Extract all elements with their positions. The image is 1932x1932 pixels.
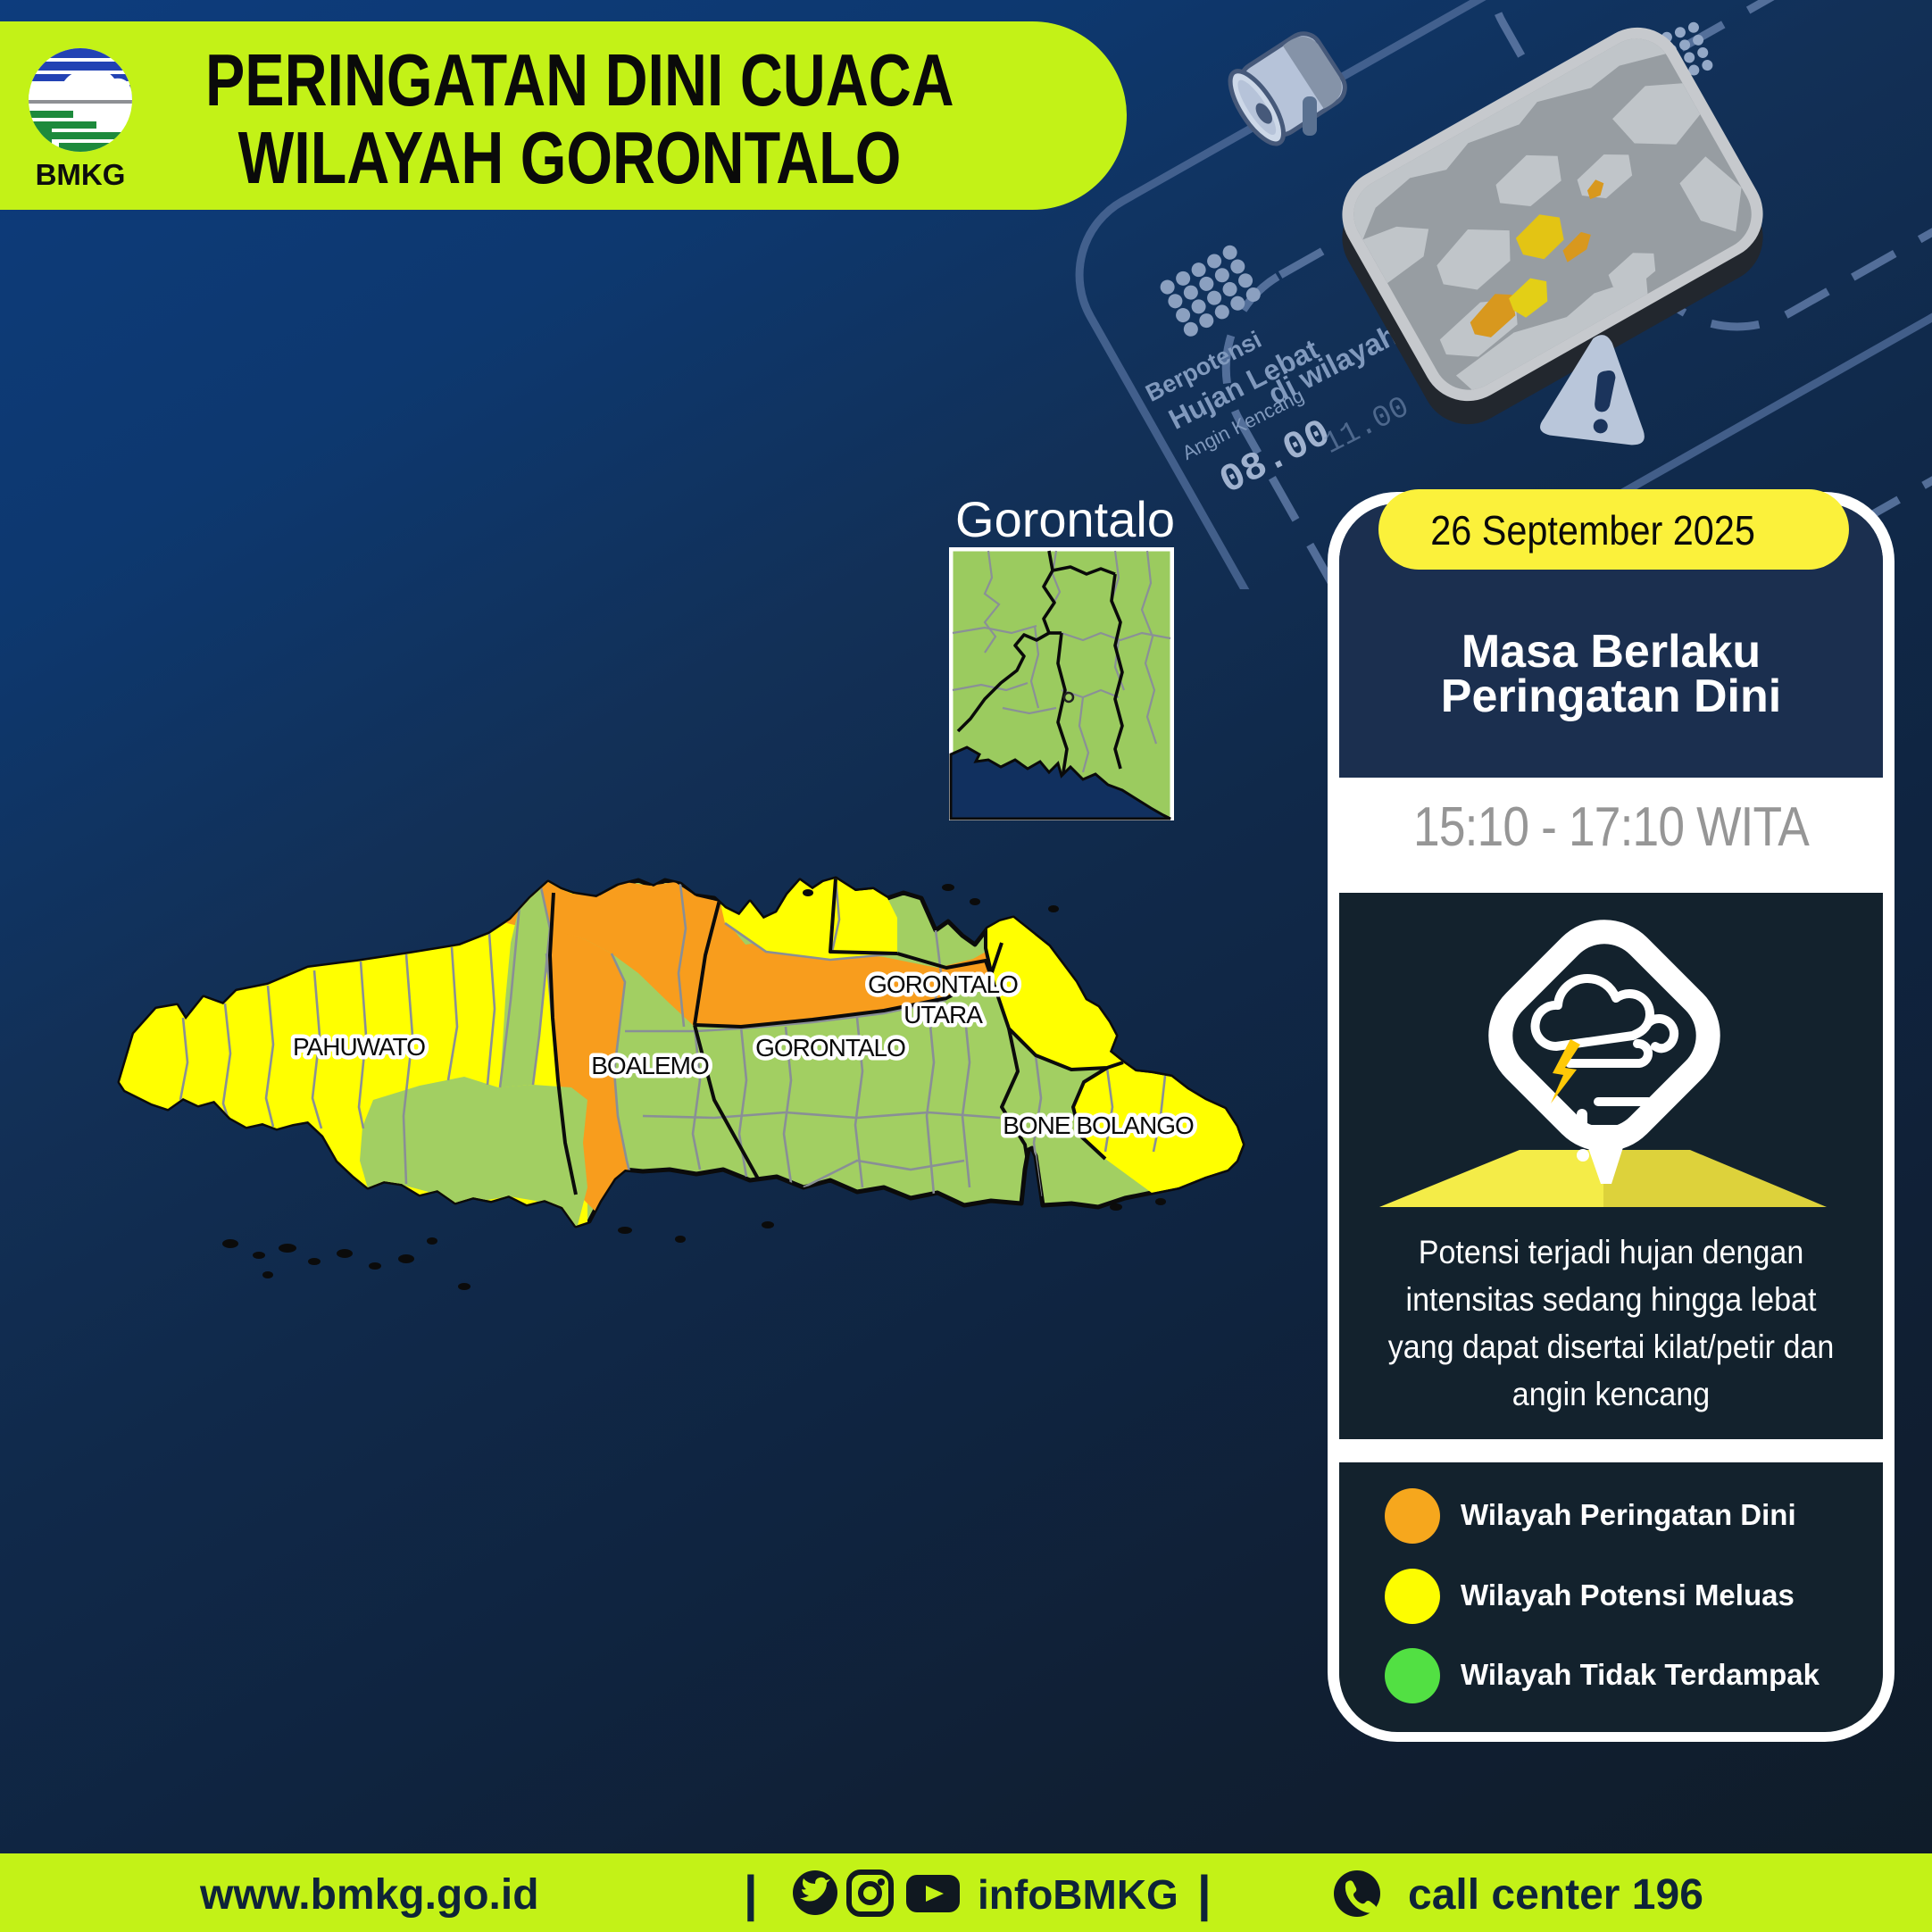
svg-text:BONE BOLANGO: BONE BOLANGO bbox=[1003, 1112, 1194, 1139]
svg-text:11.00: 11.00 bbox=[1319, 391, 1415, 462]
svg-text:GORONTALO: GORONTALO bbox=[868, 970, 1018, 998]
svg-text:BOALEMO: BOALEMO bbox=[591, 1052, 709, 1079]
svg-text:PAHUWATO: PAHUWATO bbox=[293, 1033, 425, 1061]
svg-text:BMKG: BMKG bbox=[36, 158, 126, 191]
svg-text:UTARA: UTARA bbox=[904, 1001, 983, 1028]
svg-text:GORONTALO: GORONTALO bbox=[755, 1034, 905, 1062]
